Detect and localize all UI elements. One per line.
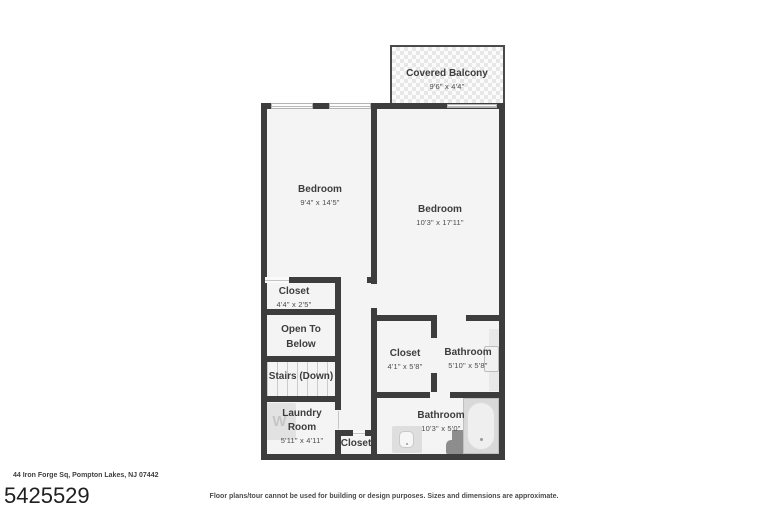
room-label-open-to-below: Open To Below bbox=[270, 322, 332, 352]
room-label-bathroom-upper: Bathroom 5'10" x 5'8" bbox=[444, 346, 491, 370]
wall bbox=[261, 454, 505, 460]
sliding-door-icon bbox=[447, 104, 497, 108]
room-name: Laundry Room bbox=[274, 407, 330, 435]
room-name: Bathroom bbox=[417, 409, 464, 423]
room-label-bedroom-right: Bedroom 10'3" x 17'11" bbox=[416, 203, 464, 227]
room-label-covered-balcony: Covered Balcony 9'6" x 4'4" bbox=[406, 67, 488, 91]
wall bbox=[341, 430, 353, 436]
toilet-bowl-icon bbox=[399, 431, 414, 448]
floor-plan: W Covered Balcony 9'6" x 4'4" Bedroom 9'… bbox=[0, 0, 768, 512]
toilet-drain-icon bbox=[406, 443, 408, 445]
room-label-closet-right: Closet 4'1" x 5'8" bbox=[388, 347, 423, 371]
room-name: Stairs (Down) bbox=[269, 370, 333, 384]
wall bbox=[365, 430, 377, 436]
disclaimer-text: Floor plans/tour cannot be used for buil… bbox=[0, 493, 768, 500]
wall bbox=[367, 277, 377, 283]
wall bbox=[371, 109, 377, 284]
wall bbox=[371, 392, 430, 398]
room-dimensions: 10'3" x 17'11" bbox=[416, 218, 464, 227]
wall bbox=[431, 373, 437, 392]
room-dimensions: 9'4" x 14'5" bbox=[298, 198, 342, 207]
wall bbox=[261, 309, 341, 315]
wall bbox=[466, 315, 505, 321]
door-opening-icon bbox=[265, 277, 289, 283]
bathtub-drain-icon bbox=[480, 438, 483, 441]
room-name: Bedroom bbox=[298, 183, 342, 197]
room-label-bedroom-left: Bedroom 9'4" x 14'5" bbox=[298, 183, 342, 207]
room-dimensions: 10'3" x 5'0" bbox=[417, 424, 464, 433]
property-address: 44 Iron Forge Sq, Pompton Lakes, NJ 0744… bbox=[13, 472, 159, 479]
room-name: Covered Balcony bbox=[406, 67, 488, 81]
window-icon bbox=[329, 103, 371, 109]
room-name: Closet bbox=[341, 437, 372, 451]
wall bbox=[431, 321, 437, 338]
room-name: Closet bbox=[277, 285, 312, 299]
room-dimensions: 5'11" x 4'11" bbox=[274, 436, 330, 445]
room-name: Closet bbox=[388, 347, 423, 361]
bathtub-basin-icon bbox=[467, 402, 495, 450]
wall bbox=[335, 283, 341, 315]
room-label-laundry: Laundry Room 5'11" x 4'11" bbox=[274, 407, 330, 445]
room-dimensions: 4'4" x 2'5" bbox=[277, 300, 312, 309]
room-label-bathroom-lower: Bathroom 10'3" x 5'0" bbox=[417, 409, 464, 433]
wall bbox=[261, 356, 341, 362]
room-dimensions: 5'10" x 5'8" bbox=[444, 361, 491, 370]
window-icon bbox=[271, 103, 313, 109]
room-name: Bathroom bbox=[444, 346, 491, 360]
wall bbox=[499, 103, 505, 460]
wall bbox=[371, 315, 437, 321]
door-opening-icon bbox=[338, 411, 339, 429]
wall bbox=[261, 396, 341, 402]
room-dimensions: 9'6" x 4'4" bbox=[406, 82, 488, 91]
room-label-stairs: Stairs (Down) bbox=[269, 370, 333, 384]
room-name: Open To Below bbox=[270, 322, 332, 352]
room-dimensions: 4'1" x 5'8" bbox=[388, 362, 423, 371]
wall bbox=[450, 392, 505, 398]
door-opening-icon bbox=[353, 431, 365, 435]
room-label-closet-upper: Closet 4'4" x 2'5" bbox=[277, 285, 312, 309]
room-label-closet-hall: Closet bbox=[341, 437, 372, 451]
room-name: Bedroom bbox=[416, 203, 464, 217]
